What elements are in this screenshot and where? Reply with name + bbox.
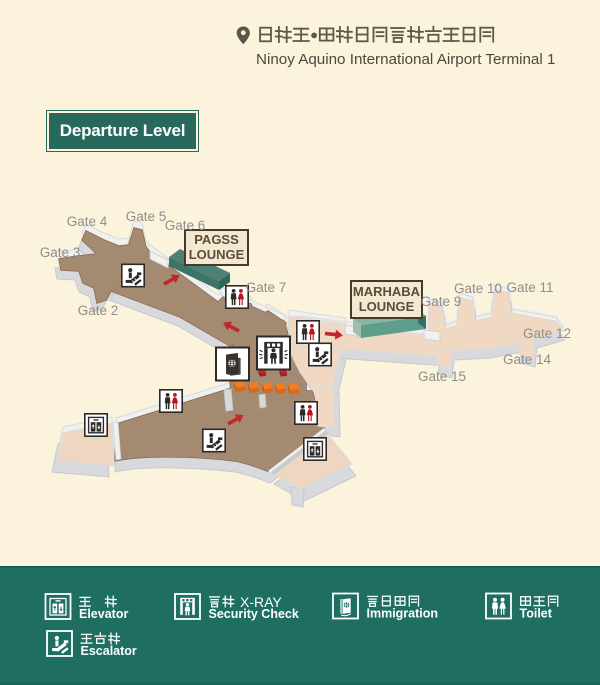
svg-text:Gate 15: Gate 15 (418, 369, 466, 384)
svg-text:Gate 3: Gate 3 (40, 245, 81, 260)
svg-text:Gate 6: Gate 6 (165, 218, 206, 233)
svg-text:LOUNGE: LOUNGE (359, 299, 415, 314)
svg-text:Elevator: Elevator (79, 607, 128, 621)
svg-text:Gate 9: Gate 9 (421, 294, 462, 309)
svg-text:X-RAY: X-RAY (240, 594, 282, 610)
svg-text:Toilet: Toilet (520, 607, 553, 621)
svg-text:Gate 7: Gate 7 (246, 280, 287, 295)
svg-text:Ninoy Aquino International Air: Ninoy Aquino International Airport Termi… (256, 51, 555, 68)
svg-text:PAGSS: PAGSS (194, 232, 239, 247)
svg-text:Immigration: Immigration (367, 607, 439, 621)
svg-text:Gate 11: Gate 11 (506, 280, 553, 295)
svg-text:Gate 12: Gate 12 (523, 326, 571, 341)
svg-text:Gate 4: Gate 4 (67, 214, 108, 229)
svg-text:Escalator: Escalator (81, 644, 137, 658)
svg-text:Gate 10: Gate 10 (454, 281, 502, 296)
svg-text:Gate 2: Gate 2 (78, 303, 119, 318)
svg-text:LOUNGE: LOUNGE (189, 247, 245, 262)
svg-text:MARHABA: MARHABA (353, 284, 421, 299)
svg-text:Gate 14: Gate 14 (503, 352, 552, 367)
svg-text:Gate 5: Gate 5 (126, 209, 167, 224)
